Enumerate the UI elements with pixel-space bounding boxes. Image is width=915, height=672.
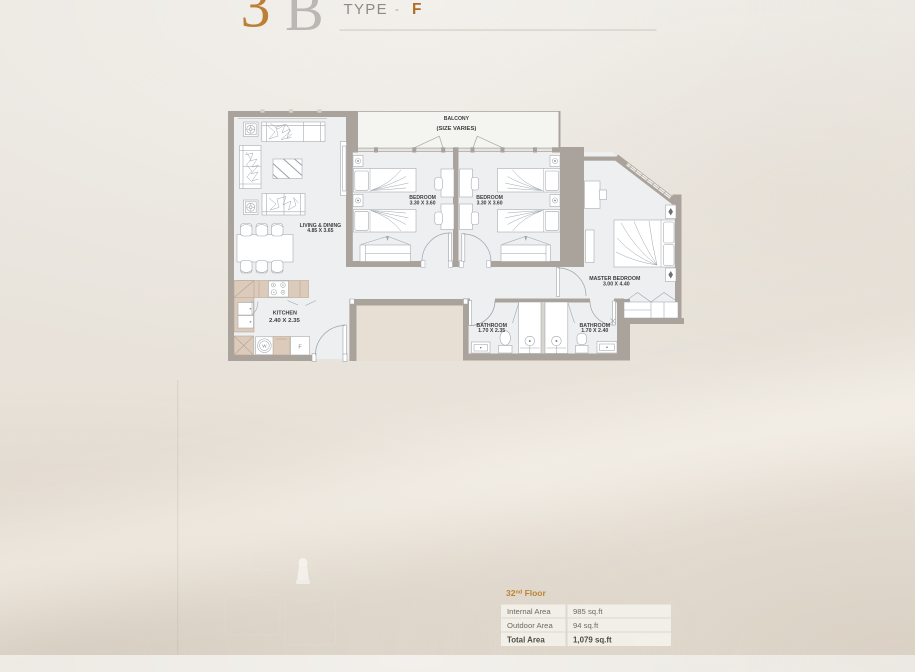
svg-text:Internal Area: Internal Area <box>507 607 551 616</box>
svg-text:-: - <box>395 2 399 16</box>
svg-text:94 sq.ft: 94 sq.ft <box>573 621 599 630</box>
svg-text:W: W <box>262 344 267 349</box>
svg-text:BALCONY: BALCONY <box>444 116 469 122</box>
svg-text:985 sq.ft: 985 sq.ft <box>573 607 603 616</box>
svg-text:1.70 X 2.40: 1.70 X 2.40 <box>581 328 608 334</box>
svg-text:KITCHEN: KITCHEN <box>273 310 297 316</box>
svg-text:TYPE: TYPE <box>344 1 388 18</box>
svg-text:Total Area: Total Area <box>507 635 545 644</box>
svg-text:1,079 sq.ft: 1,079 sq.ft <box>573 635 612 644</box>
svg-text:3.30 X 3.60: 3.30 X 3.60 <box>477 201 503 207</box>
svg-text:4.85 X 3.65: 4.85 X 3.65 <box>307 228 333 234</box>
svg-text:3.00 X 4.40: 3.00 X 4.40 <box>603 282 630 288</box>
svg-text:Outdoor Area: Outdoor Area <box>507 621 553 630</box>
svg-text:B: B <box>285 0 324 43</box>
svg-text:F: F <box>412 1 421 18</box>
svg-text:1.70 X 2.35: 1.70 X 2.35 <box>478 328 505 334</box>
svg-text:32nd Floor: 32nd Floor <box>506 588 547 598</box>
svg-text:(SIZE VARIES): (SIZE VARIES) <box>437 126 477 132</box>
svg-text:2.40 X 2.35: 2.40 X 2.35 <box>269 318 301 324</box>
svg-text:3.30 X 3.60: 3.30 X 3.60 <box>410 201 436 207</box>
svg-text:3: 3 <box>241 0 271 40</box>
